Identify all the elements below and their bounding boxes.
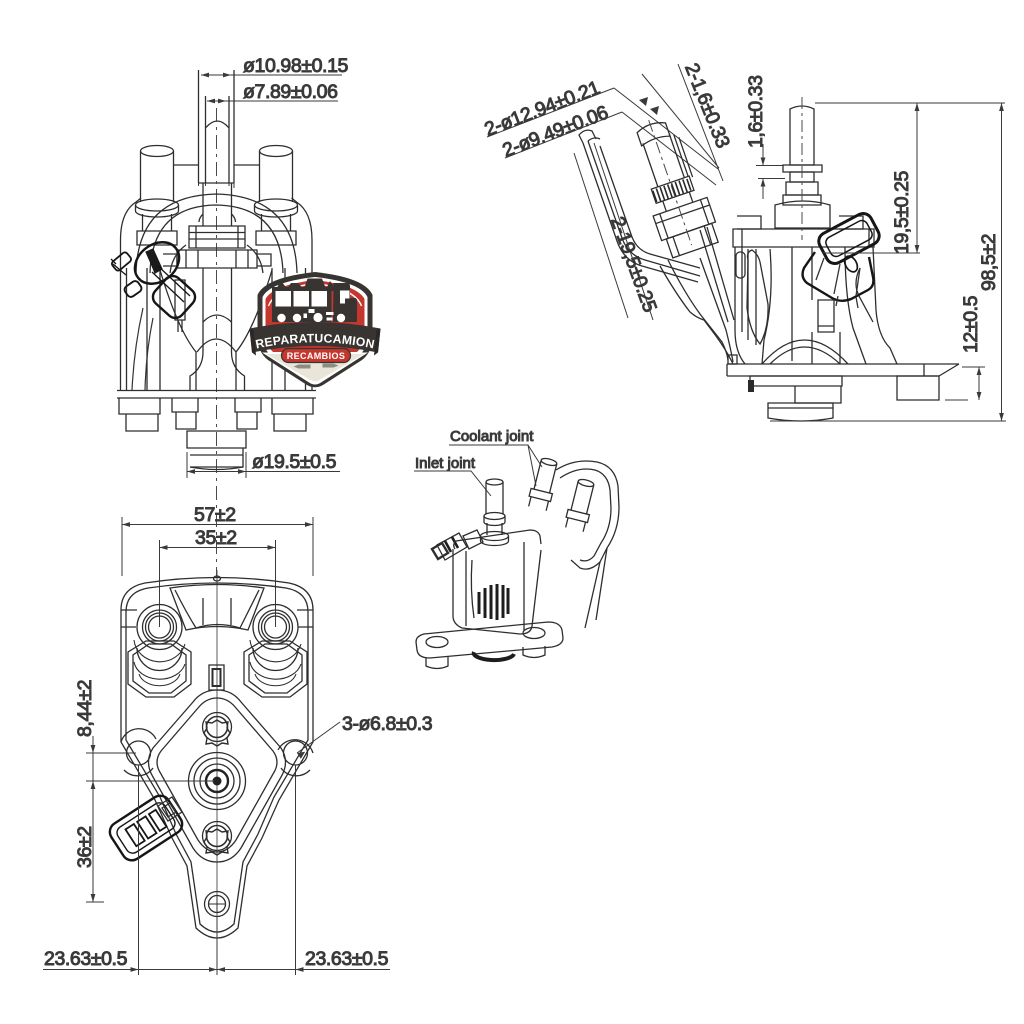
svg-text:Coolant joint: Coolant joint (450, 428, 534, 445)
svg-text:ø7.89±0.06: ø7.89±0.06 (243, 81, 338, 103)
svg-text:ø19.5±0.5: ø19.5±0.5 (252, 451, 337, 473)
svg-text:RECAMBIOS: RECAMBIOS (287, 351, 346, 361)
svg-text:12±0.5: 12±0.5 (960, 295, 982, 353)
svg-text:19,5±0.25: 19,5±0.25 (891, 170, 913, 254)
svg-text:ø10.98±0.15: ø10.98±0.15 (243, 55, 349, 77)
svg-text:23.63±0.5: 23.63±0.5 (44, 948, 128, 970)
svg-text:3-ø6.8±0.3: 3-ø6.8±0.3 (342, 713, 432, 735)
svg-text:57±2: 57±2 (194, 504, 236, 526)
svg-text:8,44±2: 8,44±2 (74, 680, 96, 737)
svg-text:98,5±2: 98,5±2 (978, 234, 1000, 291)
svg-text:35±2: 35±2 (195, 527, 237, 549)
svg-text:Inlet joint: Inlet joint (415, 455, 476, 472)
svg-text:23.63±0.5: 23.63±0.5 (305, 948, 389, 970)
svg-text:1,6±0.33: 1,6±0.33 (745, 75, 767, 148)
